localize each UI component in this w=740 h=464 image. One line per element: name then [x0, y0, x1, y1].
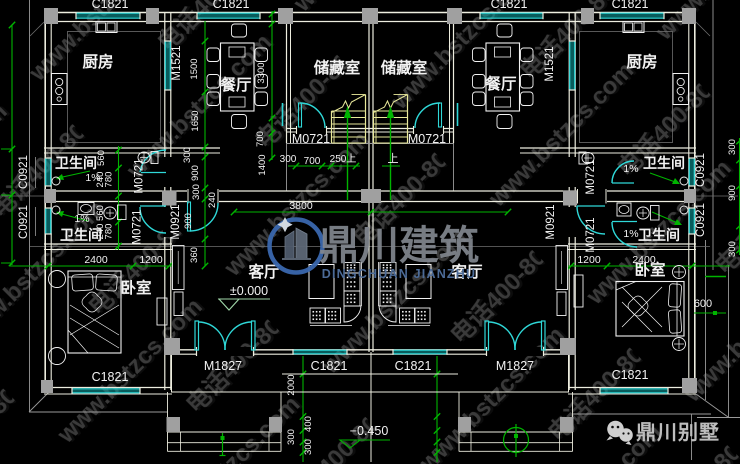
svg-text:300: 300 — [286, 429, 297, 445]
svg-text:780: 780 — [104, 224, 115, 240]
svg-text:C1821: C1821 — [92, 0, 129, 11]
svg-text:C1821: C1821 — [491, 0, 528, 11]
svg-text:900: 900 — [727, 185, 738, 201]
svg-text:3300: 3300 — [256, 62, 267, 83]
svg-text:储藏室: 储藏室 — [313, 58, 361, 77]
svg-text:鼎川别墅: 鼎川别墅 — [636, 421, 720, 444]
svg-text:1650: 1650 — [190, 110, 201, 131]
svg-text:C1821: C1821 — [395, 359, 432, 373]
svg-text:250上: 250上 — [330, 153, 357, 165]
svg-text:M0721: M0721 — [408, 132, 446, 146]
svg-text:M0721: M0721 — [132, 209, 144, 244]
svg-text:C0921: C0921 — [18, 205, 30, 239]
svg-text:900: 900 — [183, 213, 194, 229]
svg-text:M0721: M0721 — [134, 158, 146, 193]
svg-text:1200: 1200 — [139, 254, 163, 266]
svg-text:1400: 1400 — [257, 154, 268, 175]
svg-text:C1821: C1821 — [213, 0, 250, 11]
svg-text:C1821: C1821 — [311, 359, 348, 373]
svg-text:400: 400 — [303, 416, 314, 432]
svg-text:240: 240 — [207, 192, 218, 208]
svg-text:M1521: M1521 — [544, 46, 556, 81]
svg-text:鼎川建筑: 鼎川建筑 — [319, 224, 479, 268]
svg-text:卫生间: 卫生间 — [643, 155, 685, 171]
svg-text:3800: 3800 — [289, 200, 313, 212]
svg-text:卫生间: 卫生间 — [638, 227, 680, 243]
svg-text:300: 300 — [182, 147, 193, 163]
svg-text:300: 300 — [303, 439, 314, 455]
svg-text:厨房: 厨房 — [626, 52, 657, 71]
svg-text:2400: 2400 — [632, 254, 656, 266]
svg-text:C0921: C0921 — [695, 203, 707, 237]
svg-text:300: 300 — [727, 241, 738, 257]
svg-text:780: 780 — [104, 172, 115, 188]
svg-text:1200: 1200 — [577, 254, 601, 266]
svg-text:餐厅: 餐厅 — [219, 75, 252, 94]
svg-text:700: 700 — [255, 131, 266, 147]
svg-text:C0921: C0921 — [18, 155, 30, 189]
svg-text:300: 300 — [191, 184, 202, 200]
svg-text:900: 900 — [190, 165, 201, 181]
svg-text:−0.450: −0.450 — [350, 424, 389, 438]
svg-text:700: 700 — [304, 156, 321, 167]
svg-text:卧室: 卧室 — [120, 278, 151, 297]
svg-text:1500: 1500 — [189, 58, 200, 79]
svg-text:560: 560 — [95, 205, 106, 221]
svg-text:M0721: M0721 — [585, 159, 597, 194]
svg-text:DINGCHUAN JIANZHU: DINGCHUAN JIANZHU — [322, 267, 476, 281]
svg-text:M0721: M0721 — [292, 132, 330, 146]
svg-text:300: 300 — [280, 154, 297, 165]
svg-text:2000: 2000 — [286, 374, 297, 395]
svg-text:±0.000: ±0.000 — [230, 284, 268, 298]
svg-text:M0721: M0721 — [585, 217, 597, 252]
svg-text:1%: 1% — [623, 163, 638, 175]
svg-text:上: 上 — [388, 152, 399, 165]
svg-text:1%: 1% — [623, 228, 638, 240]
svg-text:600: 600 — [694, 298, 712, 310]
svg-text:C1821: C1821 — [612, 368, 649, 382]
svg-text:300: 300 — [727, 139, 738, 155]
svg-text:M1827: M1827 — [204, 359, 242, 373]
svg-text:C1821: C1821 — [612, 0, 649, 11]
svg-text:560: 560 — [96, 150, 107, 166]
svg-text:C0921: C0921 — [695, 153, 707, 187]
svg-text:厨房: 厨房 — [82, 52, 113, 71]
svg-text:1%: 1% — [74, 213, 89, 225]
svg-text:C1821: C1821 — [92, 370, 129, 384]
svg-text:M0921: M0921 — [170, 204, 182, 239]
svg-text:M1521: M1521 — [171, 45, 183, 80]
svg-text:M1827: M1827 — [496, 359, 534, 373]
svg-text:储藏室: 储藏室 — [380, 58, 428, 77]
svg-text:餐厅: 餐厅 — [484, 74, 517, 93]
svg-text:2400: 2400 — [84, 254, 108, 266]
svg-text:M0921: M0921 — [545, 204, 557, 239]
svg-text:卫生间: 卫生间 — [55, 155, 97, 171]
svg-text:360: 360 — [189, 247, 200, 263]
